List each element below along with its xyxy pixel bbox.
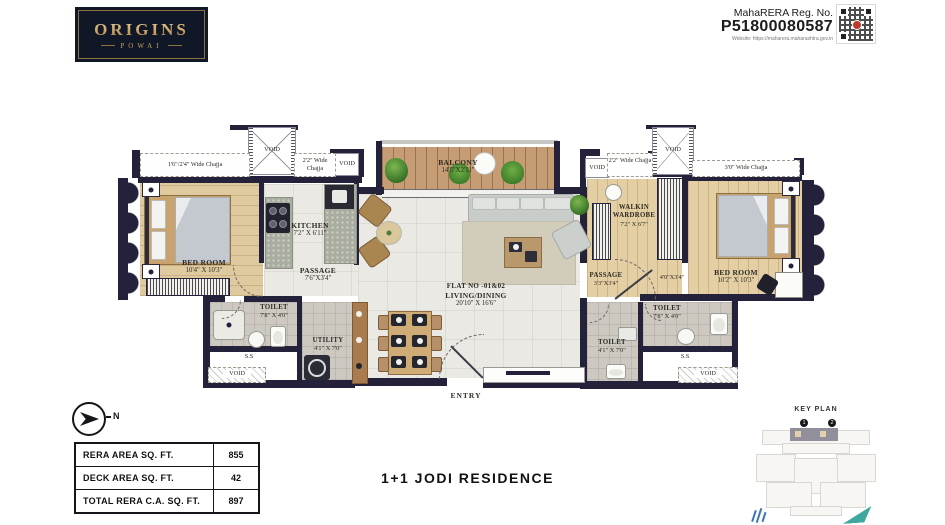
void-shaft: VOID	[248, 127, 296, 175]
bed	[144, 195, 231, 265]
lamp-icon	[149, 269, 154, 274]
brand-name: ORIGINS	[94, 20, 189, 40]
key-plan-block	[782, 443, 850, 454]
brand-subtitle-text: POWAI	[120, 42, 162, 50]
toilet-left-label: TOILET 7'8" X 4'0"	[248, 304, 300, 320]
dining-chair	[378, 315, 389, 330]
pillow	[774, 227, 789, 254]
duvet	[175, 197, 230, 263]
sofa-cushion	[472, 197, 496, 210]
nightstand	[782, 181, 800, 196]
key-plan-block	[790, 506, 842, 516]
wc-bowl	[273, 331, 283, 344]
toilet-wc	[710, 313, 728, 335]
qr-code-icon	[836, 4, 876, 44]
window-scallops-right	[814, 180, 826, 301]
page-title: 1+1 JODI RESIDENCE	[295, 470, 640, 486]
nightstand	[142, 264, 160, 279]
key-plan-building	[756, 430, 876, 516]
unit-icon	[795, 431, 801, 437]
area-label: DECK AREA SQ. FT.	[76, 473, 213, 483]
decor-icon	[356, 363, 362, 369]
service-shaft-label: S.S	[670, 353, 700, 361]
plate-icon	[396, 338, 402, 344]
chajja-30-label: 3'0" Wide Chajja	[693, 164, 799, 172]
bedroom1-label: BED ROOM 10'4" X 10'3"	[166, 258, 242, 276]
window-scallops-left	[128, 178, 140, 300]
placemat	[412, 314, 427, 326]
kitchen-label: KITCHEN 7'2" X 6'11"	[284, 221, 336, 239]
passage-left-label: PASSAGE 7'6"X3'4"	[290, 266, 346, 284]
compass-north-label: N	[113, 411, 120, 421]
placemat	[412, 356, 427, 368]
plate-icon	[417, 338, 423, 344]
chajja-30: 3'0" Wide Chajja	[692, 160, 800, 177]
sofa-cushion	[496, 197, 520, 210]
wardrobe	[592, 203, 611, 260]
living-label: FLAT NO -01&02 LIVING/DINING 20'10" X 16…	[434, 282, 518, 309]
placemat	[391, 356, 406, 368]
plate-icon	[417, 317, 423, 323]
plate-icon	[396, 317, 402, 323]
burner-icon	[269, 220, 277, 228]
chajja-left: 1'6"/2'4" Wide Chajja	[140, 153, 250, 177]
compass-dash	[106, 416, 111, 418]
lamp-icon	[789, 263, 794, 268]
toilet-right-a-label: TOILET 4'1" X 7'0"	[587, 339, 637, 355]
wardrobe	[146, 278, 230, 296]
plate-icon	[513, 244, 519, 250]
wall	[259, 177, 264, 263]
wardrobe	[657, 178, 683, 260]
area-value: 42	[213, 467, 258, 489]
chajja-22-left-label: 2'2" Wide Chajja	[295, 157, 335, 173]
plate-icon	[396, 359, 402, 365]
washer-drum	[308, 359, 326, 377]
void-label: VOID	[694, 370, 722, 378]
washing-machine-icon	[304, 355, 330, 380]
key-plan-marker: 2	[828, 419, 836, 427]
round-table	[376, 221, 402, 245]
dining-chair	[431, 336, 442, 351]
nightstand	[782, 258, 800, 273]
wall	[359, 149, 364, 177]
void-label: VOID	[336, 160, 358, 168]
dining-chair	[431, 315, 442, 330]
rera-number: P51800080587	[693, 19, 833, 36]
area-label: RERA AREA SQ. FT.	[76, 450, 213, 460]
sofa-cushion	[520, 197, 544, 210]
qr-finder	[839, 32, 848, 41]
bed	[716, 193, 796, 259]
main-door	[506, 371, 550, 375]
chajja-left-label: 1'6"/2'4" Wide Chajja	[141, 161, 249, 169]
kitchen-sink	[325, 185, 354, 209]
wall	[244, 296, 302, 302]
void-shaft: VOID	[652, 127, 694, 175]
brand-logo-frame: ORIGINS POWAI	[78, 10, 205, 59]
wall	[638, 302, 643, 382]
qr-finder	[864, 7, 873, 16]
window-wall-left	[118, 178, 128, 300]
logo-rule-left	[101, 45, 115, 46]
void-label: VOID	[249, 146, 295, 154]
headboard	[145, 196, 149, 264]
rera-website: Website: https://maharera.maharashtra.go…	[693, 36, 833, 42]
void-strip: VOID	[678, 367, 738, 383]
balcony-chair	[501, 161, 524, 184]
brand-subtitle: POWAI	[101, 42, 181, 50]
drain-icon	[227, 323, 232, 328]
window-wall-right	[802, 180, 814, 301]
nightstand	[142, 182, 160, 197]
balcony-railing	[380, 140, 558, 144]
plate-icon	[417, 359, 423, 365]
pillow	[151, 231, 166, 260]
entry-label: ENTRY	[444, 391, 488, 400]
void-label: VOID	[586, 164, 608, 172]
area-table: RERA AREA SQ. FT. 855 DECK AREA SQ. FT. …	[74, 442, 260, 514]
wall	[355, 378, 447, 386]
table-row: DECK AREA SQ. FT. 42	[76, 466, 258, 489]
toilet-wc	[270, 326, 286, 347]
void-shaft: VOID	[335, 153, 359, 176]
tray	[509, 242, 522, 252]
utility-label: UTILITY 4'1" X 7'0"	[302, 337, 354, 353]
walkin-label: WALKIN WARDROBE 7'2" X 6'7"	[610, 204, 658, 229]
toilet-right-b-label: TOILET 7'8" X 4'0"	[645, 305, 689, 321]
wall	[643, 346, 738, 352]
stool	[605, 184, 622, 201]
burner-icon	[279, 207, 287, 215]
key-plan-highlight	[790, 428, 838, 441]
bedroom2-label: BED ROOM 10'2" X 10'3"	[704, 268, 768, 286]
decor-icon	[356, 337, 362, 343]
plant-icon	[385, 158, 408, 183]
washbasin	[677, 328, 695, 345]
wc-bowl	[609, 369, 623, 376]
compass-icon	[72, 402, 106, 436]
floor-plan: VOID VOID VOID VOID 1'6"/2'4" Wide Chajj…	[118, 125, 830, 409]
key-plan-block	[756, 454, 796, 482]
wall	[261, 176, 362, 183]
sofa-cushion	[544, 197, 571, 210]
wall	[376, 141, 382, 195]
balcony-label: BALCONY 14'5"X2'11"	[418, 158, 498, 176]
placemat	[412, 335, 427, 347]
void-label: VOID	[223, 370, 251, 378]
compass-arrow-icon	[80, 411, 99, 427]
key-plan-block	[836, 454, 876, 482]
table-row: TOTAL RERA C.A. SQ. FT. 897	[76, 489, 258, 512]
desk	[775, 272, 803, 298]
void-label: VOID	[653, 146, 693, 154]
qr-center-logo	[852, 20, 862, 30]
sink-basin	[332, 190, 347, 203]
chajja-22-right: 2'2" Wide Chajja	[607, 153, 653, 177]
washbasin	[248, 331, 265, 348]
headboard	[791, 194, 795, 258]
coffee-table	[504, 237, 542, 268]
service-shaft-label: S.S	[234, 353, 264, 361]
decor-icon	[356, 311, 362, 317]
pillow	[151, 200, 166, 229]
brochure-page: ORIGINS POWAI MahaRERA Reg. No. P5180008…	[0, 0, 945, 525]
logo-rule-right	[168, 45, 182, 46]
chajja-22-right-label: 2'2" Wide Chajja	[608, 157, 652, 165]
void-strip: VOID	[208, 367, 266, 383]
placemat	[391, 314, 406, 326]
key-plan-marker: 1	[800, 419, 808, 427]
duvet	[718, 195, 768, 257]
key-plan: KEY PLAN 1 2	[752, 406, 880, 413]
chajja-22-left: 2'2" Wide Chajja	[294, 153, 336, 177]
rera-block: MahaRERA Reg. No. P51800080587 Website: …	[693, 7, 833, 42]
key-plan-title: KEY PLAN	[752, 406, 880, 413]
qr-finder	[839, 7, 848, 16]
pillow	[774, 198, 789, 225]
key-plan-block	[766, 482, 812, 508]
wc-bowl	[713, 318, 725, 332]
table-row: RERA AREA SQ. FT. 855	[76, 444, 258, 466]
unit-icon	[820, 431, 826, 437]
entry-lobby	[483, 367, 585, 383]
toilet-wc	[606, 364, 626, 379]
foyer-dim-label: 4'0"X3'4"	[652, 274, 692, 282]
plant-icon	[387, 231, 392, 236]
wall	[132, 150, 140, 178]
lamp-icon	[789, 186, 794, 191]
sideboard	[352, 302, 368, 384]
dining-chair	[378, 336, 389, 351]
brand-logo: ORIGINS POWAI	[75, 7, 208, 62]
key-plan-block	[820, 482, 866, 508]
area-value: 897	[213, 490, 258, 512]
plant-icon	[570, 195, 589, 215]
placemat	[391, 335, 406, 347]
burner-icon	[269, 207, 277, 215]
void-shaft: VOID	[585, 158, 609, 178]
tray	[525, 251, 537, 262]
area-value: 855	[213, 444, 258, 466]
lamp-icon	[149, 187, 154, 192]
flat-no-label: FLAT NO -01&02	[434, 282, 518, 291]
area-label: TOTAL RERA C.A. SQ. FT.	[76, 496, 213, 506]
dining-chair	[378, 357, 389, 372]
